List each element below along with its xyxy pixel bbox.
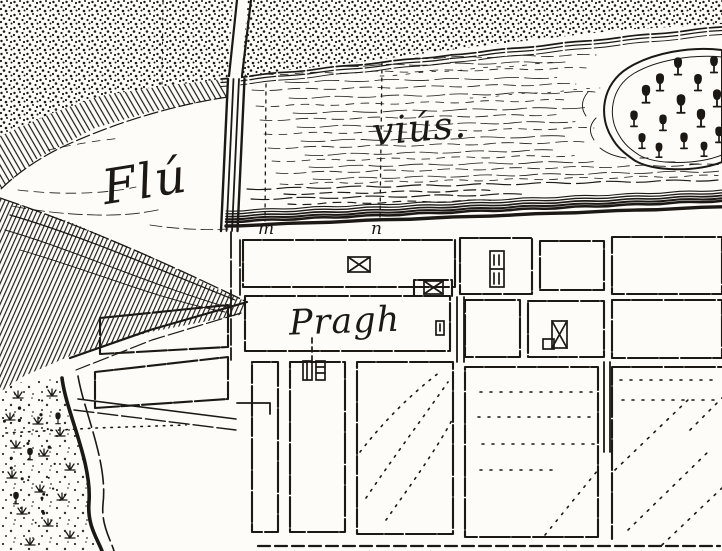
river-label-flu: Flú — [97, 147, 191, 216]
river-label-vius: viús. — [370, 102, 468, 154]
town-block — [540, 241, 604, 290]
town-block — [290, 362, 345, 532]
town-block — [252, 362, 278, 532]
building-symbol-small — [436, 321, 444, 335]
marker-n-label: n — [371, 219, 382, 239]
marker-m-label: m — [258, 219, 274, 239]
building-symbol-xtower — [543, 321, 567, 349]
street-vertical — [457, 297, 464, 362]
town-block — [95, 357, 228, 408]
diagonal-road — [78, 399, 236, 419]
street-vertical — [604, 362, 610, 452]
town-block — [357, 362, 453, 534]
lower-left-bank-slope — [0, 198, 247, 392]
town-block — [465, 300, 520, 357]
map-canvas: m n — [0, 0, 722, 551]
town-block — [612, 237, 722, 294]
island-trees — [630, 56, 722, 157]
town-label-pragh: Pragh — [287, 300, 400, 344]
engraved-map: m n — [0, 0, 722, 551]
town-block — [612, 300, 722, 358]
street-hook — [237, 403, 270, 414]
wooded-island — [582, 49, 722, 169]
survey-line-m — [265, 84, 266, 221]
town-block — [460, 238, 532, 294]
building-symbol-pair — [303, 361, 325, 380]
building-symbol-xhouse — [348, 257, 370, 272]
field-paths — [360, 372, 722, 545]
field-block-edges — [612, 367, 722, 539]
building-symbol-church — [490, 251, 504, 287]
